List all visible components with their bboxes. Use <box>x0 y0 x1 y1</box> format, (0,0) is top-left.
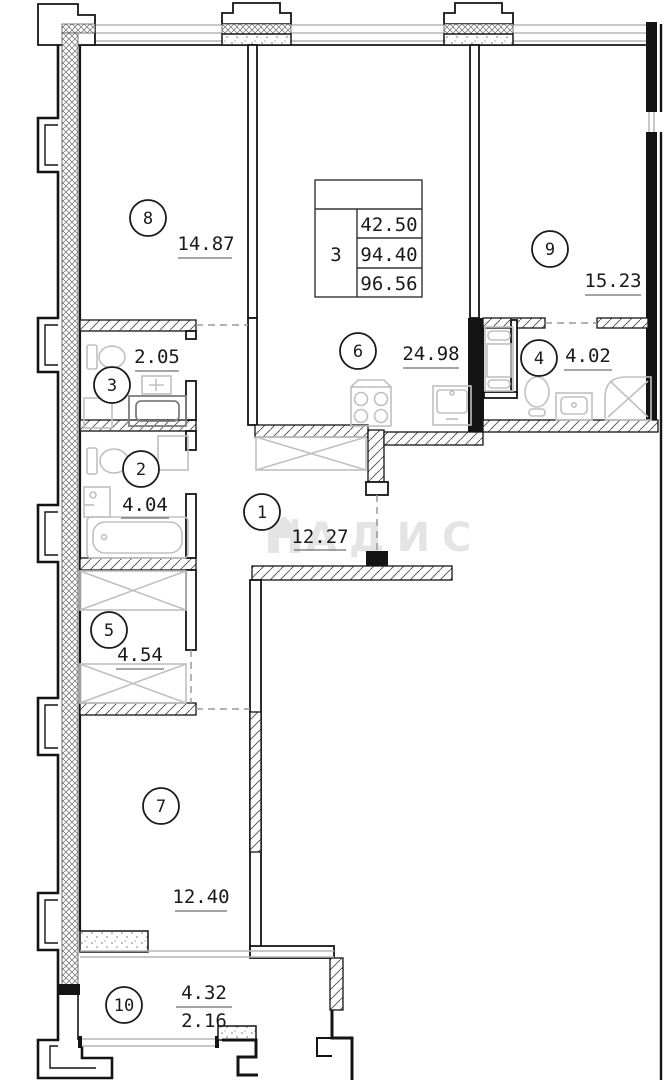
floor-plan: АДИС <box>0 0 667 1080</box>
room-1-area: 12.27 <box>291 526 348 548</box>
spec-rooms-count: 3 <box>330 244 341 266</box>
room-4-number: 4 <box>534 349 544 369</box>
right-wall-upper <box>646 22 657 112</box>
room-5-area: 4.54 <box>117 644 163 666</box>
insulation-strip <box>62 33 78 986</box>
room-3-area: 2.05 <box>134 346 180 368</box>
pilaster-top-1 <box>222 3 291 45</box>
spec-area: 94.40 <box>360 244 417 266</box>
room-8-number: 8 <box>143 209 153 229</box>
room-5-number: 5 <box>104 621 114 641</box>
room-2-number: 2 <box>136 460 146 480</box>
room-9-area: 15.23 <box>584 270 641 292</box>
room-7-number: 7 <box>156 797 166 817</box>
room-8-area: 14.87 <box>177 233 234 255</box>
room-1-number: 1 <box>257 503 267 523</box>
room-4-area: 4.02 <box>565 345 611 367</box>
room-6-number: 6 <box>353 342 363 362</box>
room-6-area: 24.98 <box>402 343 459 365</box>
room-9-number: 9 <box>545 240 555 260</box>
room-2-area: 4.04 <box>122 494 168 516</box>
room-10-area: 4.32 <box>181 982 227 1004</box>
room-7-area: 12.40 <box>172 886 229 908</box>
floor-plan-page: АДИС <box>0 0 667 1080</box>
spec-living-area: 42.50 <box>360 214 417 236</box>
room-3-number: 3 <box>107 376 117 396</box>
room-10-area-reduced: 2.16 <box>181 1010 227 1032</box>
room-10-number: 10 <box>114 996 134 1016</box>
pilaster-top-2 <box>444 3 513 45</box>
spec-total-area: 96.56 <box>360 273 417 295</box>
